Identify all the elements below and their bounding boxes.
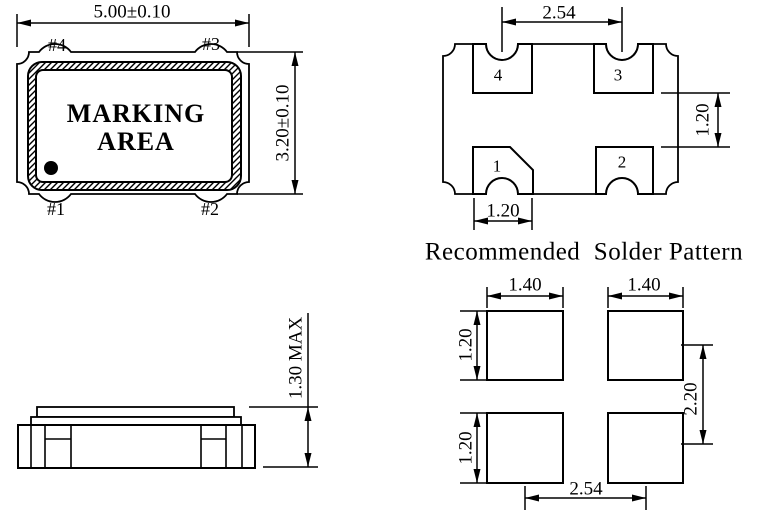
solder-pad-top-right xyxy=(608,311,683,380)
side-view-seal-ring xyxy=(31,417,241,425)
top-view-height-dim-text: 3.20±0.10 xyxy=(274,85,293,162)
solder-vertical-pitch-dim-text: 2.20 xyxy=(682,382,701,415)
pad-3 xyxy=(594,44,653,93)
bottom-view-pad1-number: 1 xyxy=(493,158,502,175)
pin1-indicator-dot xyxy=(44,161,58,175)
bottom-view-pitch-dim-text: 2.54 xyxy=(542,4,575,23)
solder-pattern-title: Recommended Solder Pattern xyxy=(425,240,743,265)
solder-pad-width-left-dim-text: 1.40 xyxy=(508,276,541,295)
side-view xyxy=(18,313,318,468)
solder-pad-height-top-dim-text: 1.20 xyxy=(457,328,476,361)
bottom-view-pad3-number: 3 xyxy=(614,67,623,84)
top-view-width-dim-text: 5.00±0.10 xyxy=(94,3,171,22)
side-view-base xyxy=(18,425,255,468)
solder-pad-bottom-right xyxy=(608,413,683,483)
bottom-view-pad4-number: 4 xyxy=(494,67,503,84)
top-view-pad2-label: #2 xyxy=(201,200,219,218)
solder-pad-height-bottom-dim-text: 1.20 xyxy=(457,431,476,464)
solder-horizontal-pitch-dim-text: 2.54 xyxy=(569,480,602,499)
solder-pad-top-left xyxy=(487,311,563,380)
marking-area-text-line1: MARKING xyxy=(67,101,205,127)
top-view-pad4-label: #4 xyxy=(48,36,66,54)
bottom-view-pad-height-dim-text: 1.20 xyxy=(694,103,713,136)
top-view-pad1-label: #1 xyxy=(47,200,65,218)
top-view-pad3-label: #3 xyxy=(202,35,220,53)
solder-pattern xyxy=(460,287,713,510)
bottom-view-pad-width-dim-text: 1.20 xyxy=(486,202,519,221)
package-drawing: 5.00±0.10 3.20±0.10 #4 #3 #1 #2 MARKING … xyxy=(0,0,769,519)
side-view-height-dim-text: 1.30 MAX xyxy=(287,317,306,399)
bottom-view-pad2-number: 2 xyxy=(618,154,627,171)
marking-area-text-line2: AREA xyxy=(97,129,175,155)
solder-pad-width-right-dim-text: 1.40 xyxy=(627,276,660,295)
solder-pad-bottom-left xyxy=(487,413,563,483)
side-view-height-dimension xyxy=(249,313,318,467)
bottom-view xyxy=(443,7,730,230)
side-view-lid xyxy=(37,407,234,417)
